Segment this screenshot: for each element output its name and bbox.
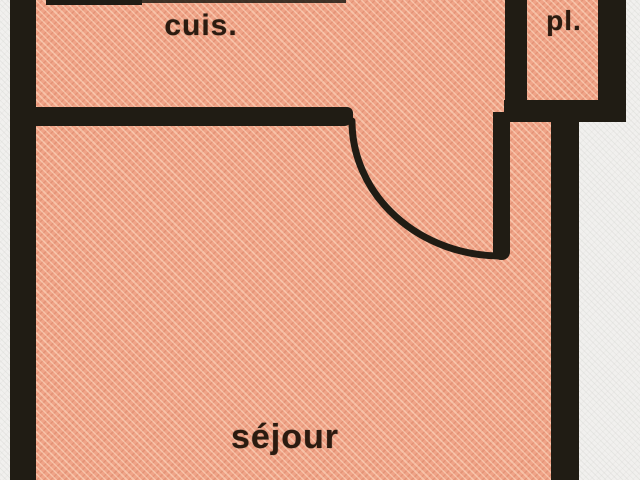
room-area-main <box>34 0 554 480</box>
wall-placard-right-exterior <box>598 0 626 114</box>
wall-left-exterior <box>10 0 36 480</box>
wall-placard-left <box>505 0 527 104</box>
wall-sejour-right-exterior <box>551 112 579 480</box>
floor-plan: cuis. pl. séjour <box>0 0 640 480</box>
room-label-placard: pl. <box>532 7 596 35</box>
room-label-sejour: séjour <box>220 420 350 454</box>
room-label-cuisine: cuis. <box>146 11 256 41</box>
door-leaf <box>493 112 510 260</box>
wall-cuisine-bottom <box>10 107 353 126</box>
wall-top-remnant-thick <box>46 0 142 5</box>
